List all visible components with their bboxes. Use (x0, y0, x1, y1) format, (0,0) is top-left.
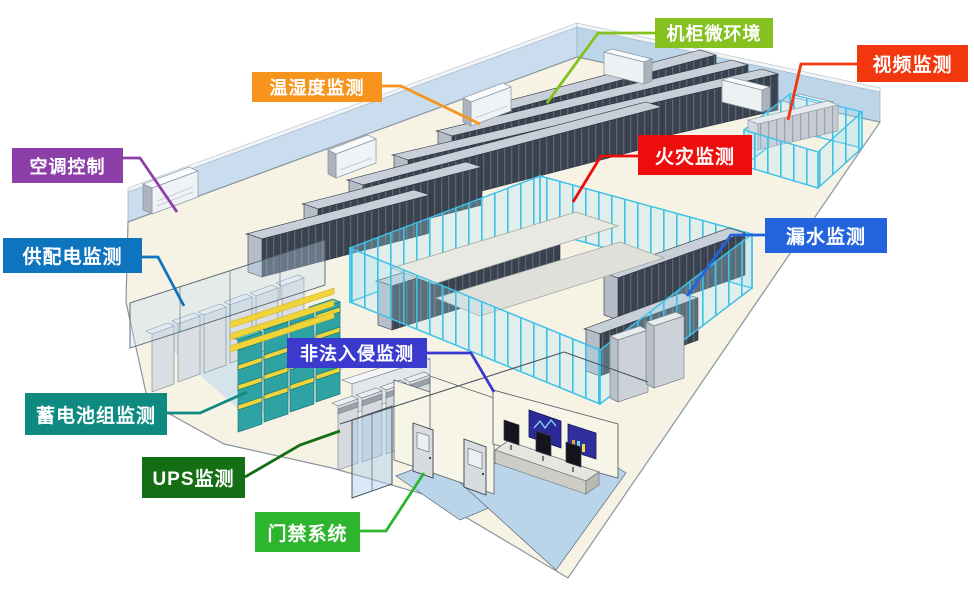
door-a (413, 423, 433, 478)
label-fire-monitoring: 火灾监测 (638, 135, 752, 175)
label-illegal-intrusion-monitoring: 非法入侵监测 (287, 338, 427, 368)
label-ups-monitoring: UPS监测 (142, 457, 245, 498)
label-air-conditioning-control: 空调控制 (12, 148, 123, 183)
label-power-distribution-monitoring: 供配电监测 (3, 238, 142, 273)
cabinet (646, 312, 684, 388)
door-b (464, 439, 486, 495)
cabinet (610, 326, 648, 402)
label-water-leak-monitoring: 漏水监测 (765, 218, 887, 253)
label-cabinet-microenvironment: 机柜微环境 (655, 18, 773, 48)
label-access-control-system: 门禁系统 (255, 512, 360, 552)
datacenter-diagram: 机柜微环境 视频监测 温湿度监测 空调控制 供配电监测 火灾监测 漏水监测 非法… (0, 0, 974, 600)
label-temperature-humidity-monitoring: 温湿度监测 (252, 72, 382, 102)
label-battery-pack-monitoring: 蓄电池组监测 (25, 393, 167, 435)
label-video-monitoring: 视频监测 (857, 45, 968, 82)
datacenter-scene (0, 0, 974, 600)
